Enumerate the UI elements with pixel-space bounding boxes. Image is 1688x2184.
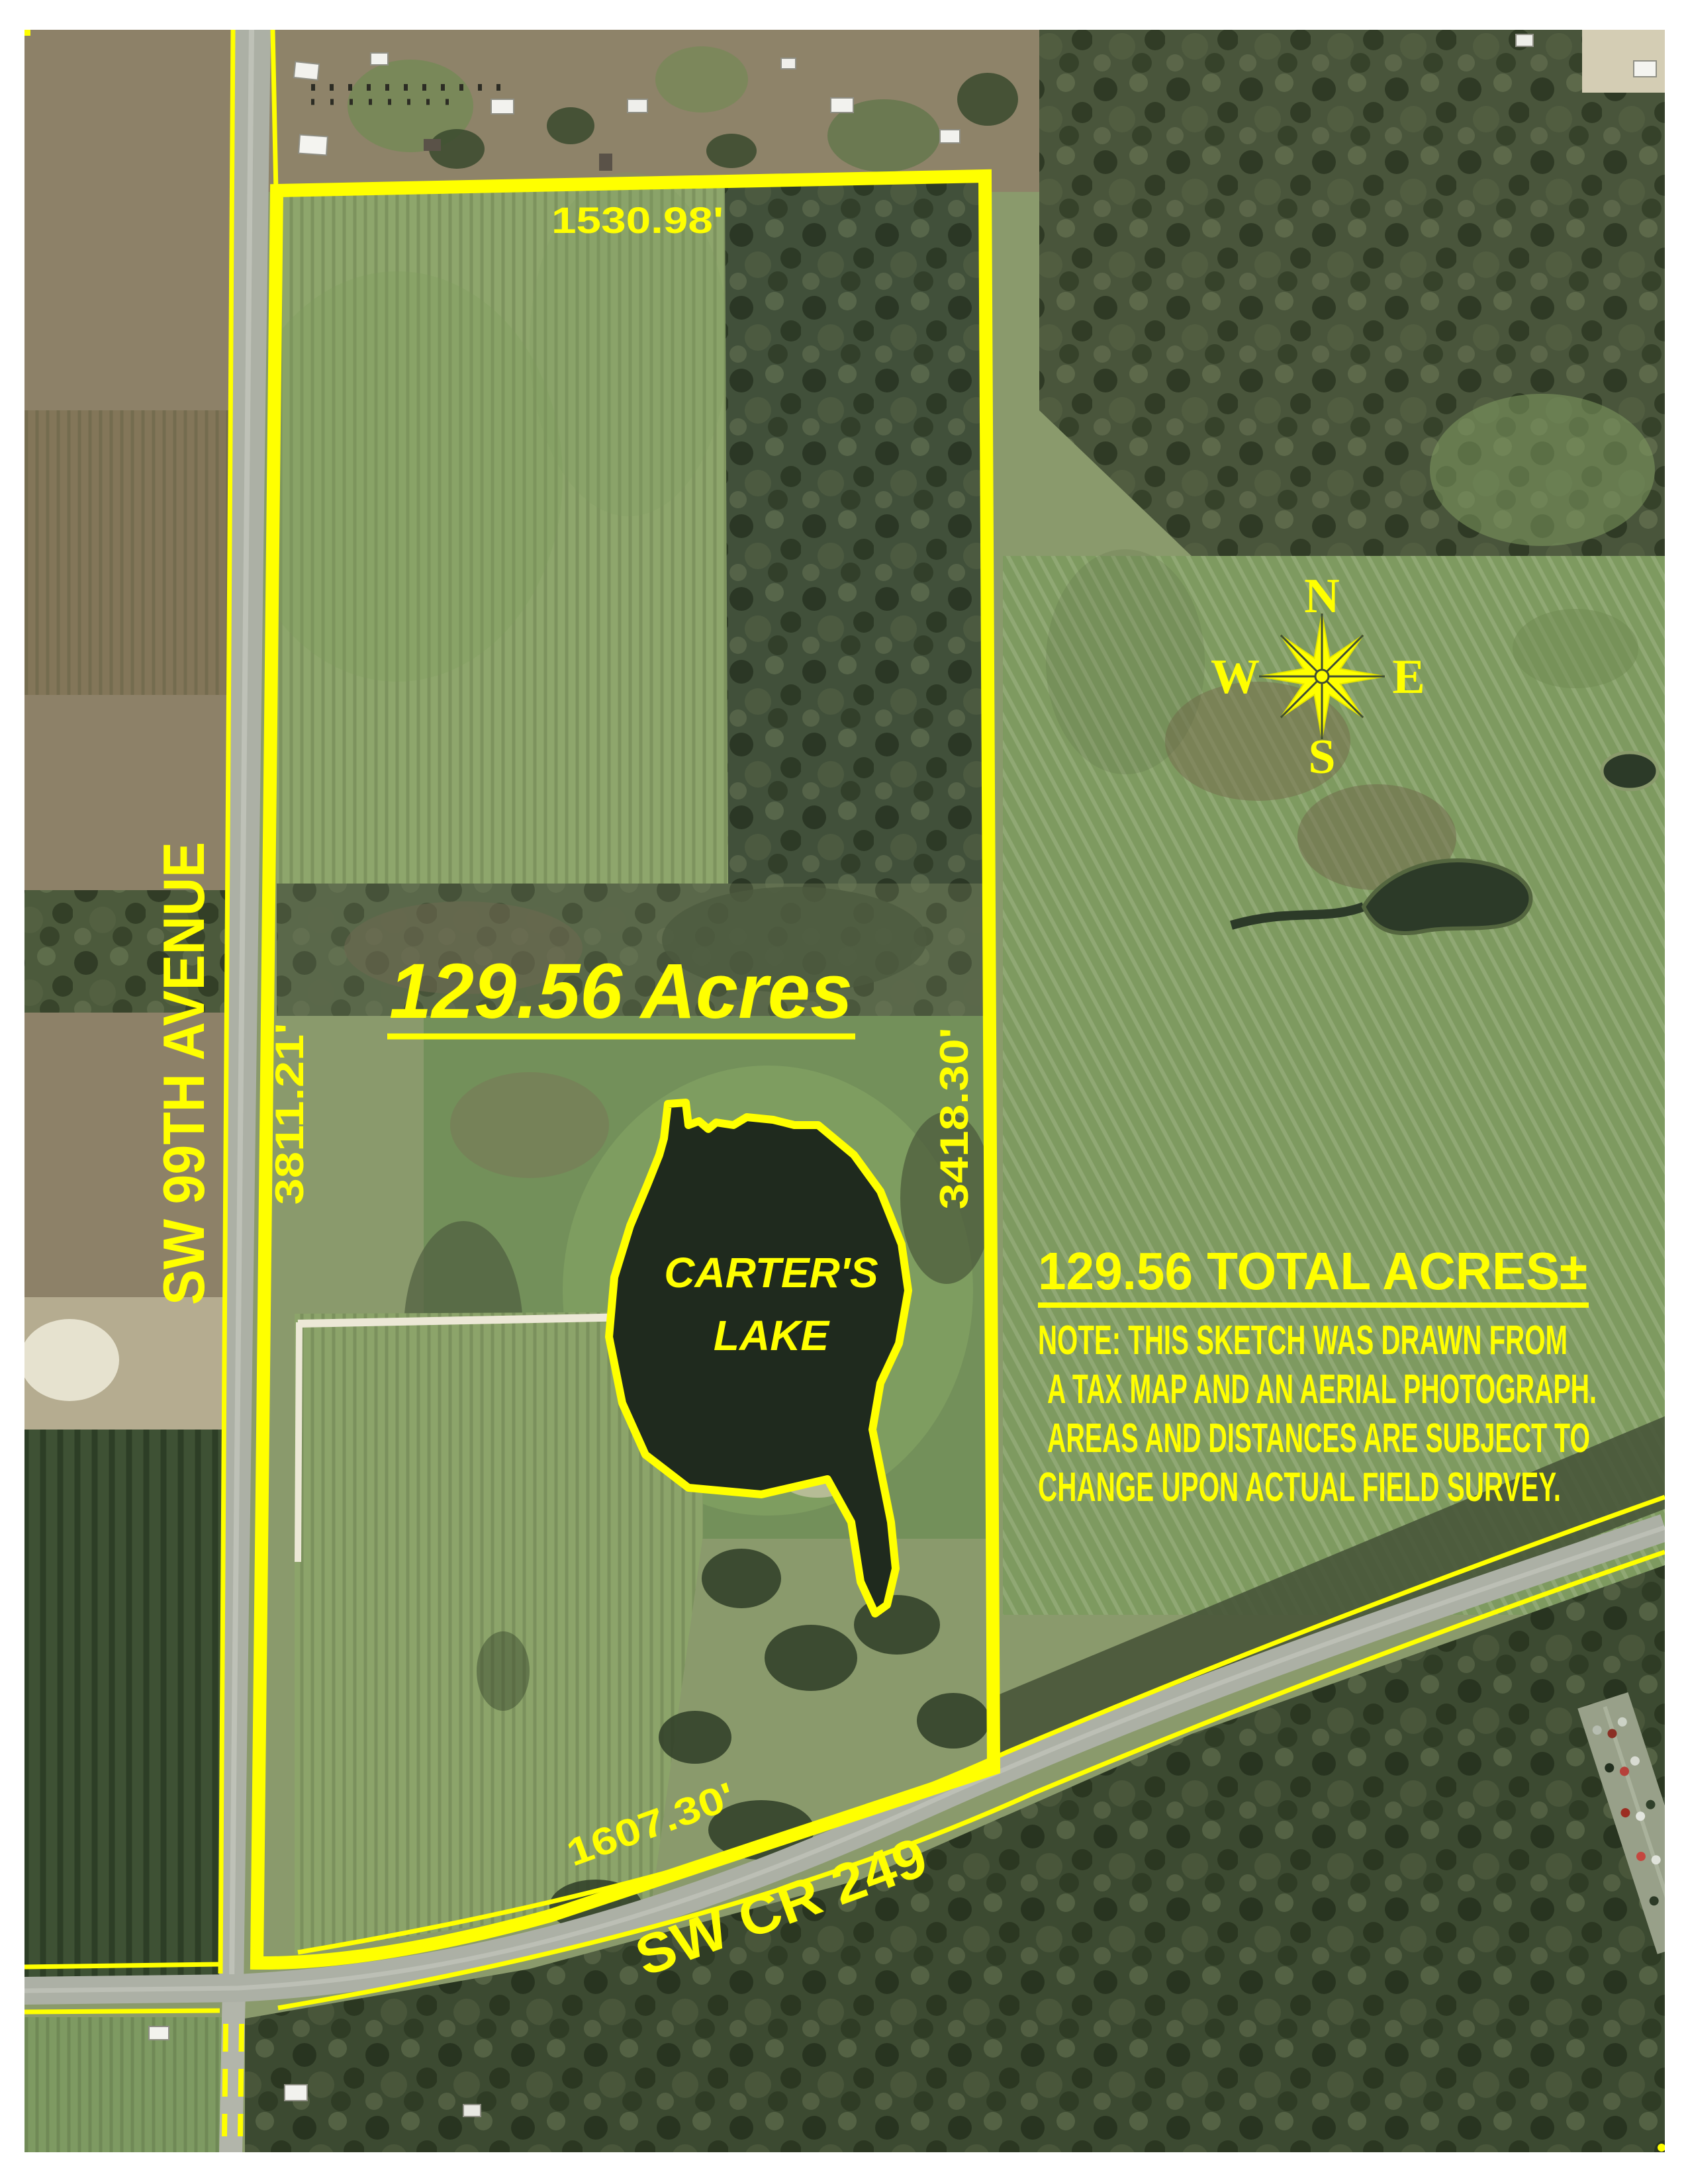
note-line-2: A TAX MAP AND AN AERIAL PHOTOGRAPH. <box>1047 1367 1597 1412</box>
center-acreage-label: 129.56 Acres <box>389 948 853 1035</box>
sand-track-left <box>298 1322 299 1562</box>
note-line-1: NOTE: THIS SKETCH WAS DRAWN FROM <box>1038 1318 1568 1363</box>
note-line-3: AREAS AND DISTANCES ARE SUBJECT TO <box>1047 1416 1590 1461</box>
east-dimension-label: 3418.30' <box>932 1028 976 1210</box>
west-street-label: SW 99TH AVENUE <box>151 842 216 1305</box>
small-pond <box>1602 752 1658 790</box>
compass-north-label: N <box>1304 569 1339 623</box>
north-dimension-label: 1530.98' <box>551 199 724 241</box>
lake-name-label-line1: CARTER'S <box>664 1249 878 1297</box>
compass-west-label: W <box>1211 650 1260 704</box>
north-strip-terrain <box>235 30 1039 192</box>
survey-sketch-page: N S E W 1530.98' SW 99TH AVENUE 3811.21'… <box>0 0 1688 2184</box>
corner-tick-nw <box>24 30 30 36</box>
compass-hub <box>1315 670 1329 683</box>
cr249-south-edge-west <box>24 2011 220 2012</box>
aerial-photo: N S E W 1530.98' SW 99TH AVENUE 3811.21'… <box>20 30 1688 2152</box>
corner-tick-se <box>1658 2144 1665 2152</box>
west-dimension-label: 3811.21' <box>267 1023 312 1205</box>
compass-south-label: S <box>1308 730 1335 784</box>
cr249-north-edge-west <box>24 1964 218 1967</box>
northeast-forest <box>1039 30 1665 556</box>
avenue-east-edge-line <box>273 30 276 192</box>
compass-east-label: E <box>1392 650 1425 704</box>
aerial-survey-map: N S E W 1530.98' SW 99TH AVENUE 3811.21'… <box>0 0 1688 2184</box>
lake-name-label-line2: LAKE <box>714 1312 831 1359</box>
total-acres-label: 129.56 TOTAL ACRES± <box>1038 1242 1587 1300</box>
note-line-4: CHANGE UPON ACTUAL FIELD SURVEY. <box>1038 1465 1561 1510</box>
